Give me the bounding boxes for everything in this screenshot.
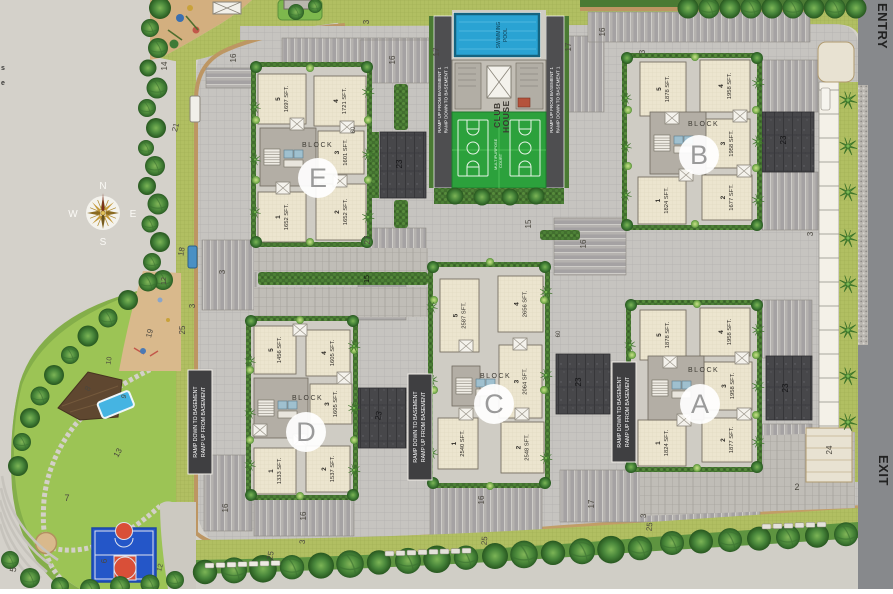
- svg-text:RAMP UP FROM BASEMENT 1: RAMP UP FROM BASEMENT 1: [437, 67, 442, 133]
- svg-text:10: 10: [105, 356, 113, 365]
- svg-text:RAMP DOWN TO BASEMENT 1: RAMP DOWN TO BASEMENT 1: [444, 66, 449, 133]
- svg-text:27: 27: [363, 235, 372, 244]
- svg-text:N: N: [99, 181, 106, 192]
- svg-text:B: B: [690, 140, 708, 170]
- svg-text:D: D: [296, 417, 316, 447]
- svg-text:RAMP DOWN TO BASEMENT 1: RAMP DOWN TO BASEMENT 1: [556, 66, 561, 133]
- svg-text:16: 16: [221, 503, 230, 512]
- svg-text:14: 14: [160, 61, 169, 70]
- svg-text:17: 17: [587, 499, 596, 508]
- svg-text:A: A: [691, 389, 709, 419]
- svg-text:16: 16: [477, 495, 486, 504]
- svg-text:C: C: [484, 389, 504, 419]
- svg-text:7: 7: [64, 493, 69, 503]
- svg-text:3: 3: [638, 49, 647, 54]
- svg-text:EXIT: EXIT: [876, 455, 891, 486]
- svg-text:24: 24: [825, 445, 834, 454]
- svg-text:15: 15: [524, 219, 533, 228]
- svg-text:17: 17: [432, 47, 441, 56]
- svg-text:16: 16: [388, 55, 397, 64]
- svg-text:s: s: [1, 65, 5, 72]
- svg-text:3: 3: [362, 19, 371, 24]
- svg-text:RAMP UP FROM BASEMENT: RAMP UP FROM BASEMENT: [421, 391, 427, 462]
- svg-text:E: E: [309, 163, 327, 193]
- svg-text:16: 16: [579, 239, 588, 248]
- svg-text:12: 12: [161, 277, 168, 285]
- svg-text:HOUSE: HOUSE: [501, 100, 511, 133]
- svg-text:3: 3: [218, 269, 227, 274]
- svg-text:60: 60: [556, 330, 562, 337]
- svg-text:E: E: [130, 209, 137, 220]
- svg-text:23: 23: [395, 159, 404, 168]
- svg-text:60: 60: [351, 126, 357, 133]
- svg-text:23: 23: [574, 377, 583, 386]
- svg-text:23: 23: [779, 135, 788, 144]
- svg-text:25: 25: [645, 521, 655, 531]
- svg-text:e: e: [1, 80, 5, 87]
- svg-text:25: 25: [178, 325, 187, 334]
- svg-text:POOL: POOL: [503, 28, 509, 42]
- svg-text:BLOCK: BLOCK: [302, 142, 333, 149]
- svg-text:RAMP DOWN TO BASEMENT: RAMP DOWN TO BASEMENT: [193, 386, 199, 458]
- svg-text:2: 2: [794, 482, 799, 492]
- svg-text:S: S: [100, 237, 107, 248]
- svg-text:BLOCK: BLOCK: [480, 373, 511, 380]
- svg-text:BLOCK: BLOCK: [688, 367, 719, 374]
- svg-text:RAMP DOWN TO BASEMENT: RAMP DOWN TO BASEMENT: [617, 376, 623, 448]
- svg-text:BLOCK: BLOCK: [688, 121, 719, 128]
- svg-text:15: 15: [364, 275, 371, 283]
- svg-text:RAMP UP FROM BASEMENT: RAMP UP FROM BASEMENT: [625, 376, 631, 447]
- svg-text:16: 16: [229, 53, 238, 62]
- svg-text:23: 23: [781, 383, 790, 392]
- svg-text:SWIMMING: SWIMMING: [496, 22, 502, 49]
- svg-text:ENTRY: ENTRY: [875, 3, 890, 49]
- svg-text:COURT: COURT: [498, 153, 503, 168]
- svg-text:25: 25: [480, 535, 490, 545]
- svg-text:BLOCK: BLOCK: [292, 395, 323, 402]
- svg-text:3: 3: [188, 303, 197, 308]
- svg-text:RAMP UP FROM BASEMENT: RAMP UP FROM BASEMENT: [201, 386, 207, 457]
- svg-text:3: 3: [806, 231, 815, 236]
- svg-text:W: W: [68, 209, 78, 220]
- svg-text:17: 17: [564, 42, 573, 51]
- svg-text:RAMP DOWN TO BASEMENT: RAMP DOWN TO BASEMENT: [413, 391, 419, 463]
- svg-text:16: 16: [598, 27, 607, 36]
- svg-text:16: 16: [299, 511, 308, 520]
- svg-text:6: 6: [100, 558, 109, 563]
- svg-text:RAMP UP FROM BASEMENT 1: RAMP UP FROM BASEMENT 1: [549, 67, 554, 133]
